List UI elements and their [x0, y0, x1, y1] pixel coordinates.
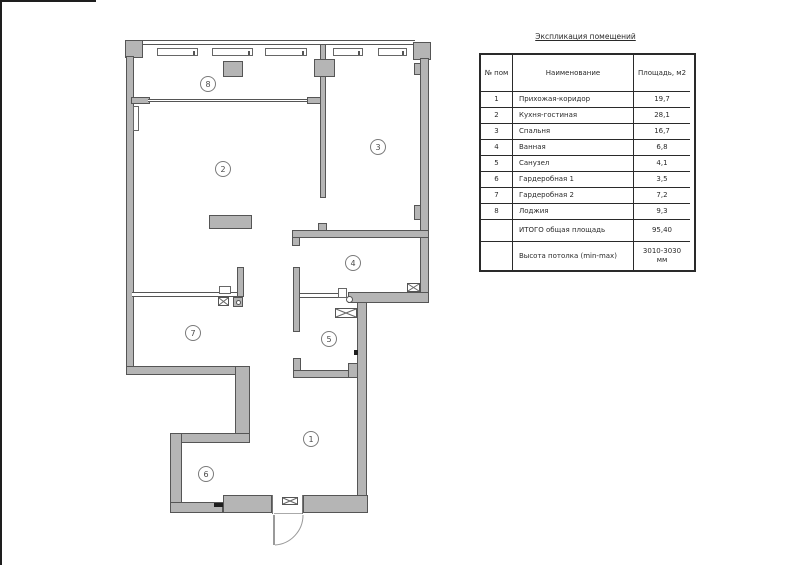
cell-num: 1 — [481, 92, 513, 108]
window — [212, 48, 253, 56]
top-exterior-wall — [143, 40, 415, 45]
room-marker-1: 1 — [303, 431, 319, 447]
cell-num: 5 — [481, 156, 513, 172]
room-number: 5 — [326, 335, 331, 344]
room-marker-4: 4 — [345, 255, 361, 271]
cell-name: Спальня — [513, 124, 634, 140]
door-jamb-icon — [219, 286, 231, 294]
room-number: 6 — [203, 470, 208, 479]
table-title: Экспликация помещений — [479, 32, 692, 41]
cell-num: 4 — [481, 140, 513, 156]
cell-num: 7 — [481, 188, 513, 204]
cell-area: 19,7 — [634, 92, 690, 108]
window — [333, 48, 363, 56]
wall-room4-top — [292, 230, 429, 238]
kitchen-island — [209, 215, 252, 229]
loggia-glazing-line — [148, 99, 310, 102]
total-value: 95,40 — [634, 220, 690, 242]
cell-num: 8 — [481, 204, 513, 220]
wall-step-vertical — [235, 366, 250, 443]
vent-shaft-icon — [218, 297, 229, 306]
pilaster — [414, 63, 421, 75]
room-number: 7 — [190, 329, 195, 338]
cell-name: Гардеробная 2 — [513, 188, 634, 204]
col-header-num: № пом — [481, 55, 513, 92]
cell-area: 3,5 — [634, 172, 690, 188]
col-header-area: Площадь, м2 — [634, 55, 690, 92]
vent-shaft-icon — [407, 283, 420, 292]
ceiling-label: Высота потолка (min-max) — [513, 242, 634, 270]
pilaster — [414, 205, 421, 220]
entry-lintel-icon — [282, 497, 298, 505]
bottom-wall-right — [303, 495, 368, 513]
divider-wall-rooms-2-3 — [320, 76, 326, 198]
cell-area: 7,2 — [634, 188, 690, 204]
cell-name: Лоджия — [513, 204, 634, 220]
door-hinge-icon — [233, 297, 243, 307]
cell-num: 6 — [481, 172, 513, 188]
wall-room7-stub — [237, 267, 244, 297]
column-block — [314, 59, 335, 77]
cell-name: Гардеробная 1 — [513, 172, 634, 188]
cell-name: Санузел — [513, 156, 634, 172]
ceiling-value: 3010-3030 мм — [634, 242, 690, 270]
wall-room6-top — [170, 433, 250, 443]
radiator-niche — [133, 106, 139, 131]
bottom-wall-mid — [223, 495, 272, 513]
col-header-name: Наименование — [513, 55, 634, 92]
scan-edge-top — [0, 0, 96, 2]
window — [157, 48, 198, 56]
explication-table: № пом Наименование Площадь, м2 1 Прихожа… — [479, 53, 696, 272]
entry-jamb — [302, 495, 303, 514]
wall-bump — [318, 223, 327, 231]
room-number: 3 — [375, 143, 380, 152]
right-exterior-wall — [420, 58, 429, 303]
room-marker-6: 6 — [198, 466, 214, 482]
room-marker-8: 8 — [200, 76, 216, 92]
cell-area: 28,1 — [634, 108, 690, 124]
room-number: 4 — [350, 259, 355, 268]
room-marker-2: 2 — [215, 161, 231, 177]
wall-room5-top — [300, 293, 343, 298]
window — [265, 48, 307, 56]
entry-door-arc — [275, 514, 303, 545]
empty-cell — [481, 220, 513, 242]
cell-area: 6,8 — [634, 140, 690, 156]
empty-cell — [481, 242, 513, 270]
floorplan-sheet: 1 2 3 4 5 6 7 8 Экспликация помещений № … — [0, 0, 800, 565]
wall-corridor-right — [293, 267, 300, 332]
cell-area: 16,7 — [634, 124, 690, 140]
scan-edge-left — [0, 0, 2, 565]
room-number: 1 — [308, 435, 313, 444]
cell-area: 4,1 — [634, 156, 690, 172]
cell-name: Кухня-гостиная — [513, 108, 634, 124]
wall-stub — [292, 237, 300, 246]
cell-name: Ванная — [513, 140, 634, 156]
room-marker-5: 5 — [321, 331, 337, 347]
cell-num: 3 — [481, 124, 513, 140]
total-label: ИТОГО общая площадь — [513, 220, 634, 242]
window — [378, 48, 407, 56]
room-number: 2 — [220, 165, 225, 174]
threshold-mark — [214, 503, 223, 507]
wall-step-horizontal — [126, 366, 250, 375]
cell-area: 9,3 — [634, 204, 690, 220]
wall-room6-left — [170, 433, 182, 513]
wall-notch — [354, 350, 358, 355]
cell-name: Прихожая-коридор — [513, 92, 634, 108]
vent-shaft-icon — [335, 308, 357, 318]
cell-num: 2 — [481, 108, 513, 124]
entry-jamb — [272, 495, 273, 514]
wall-right-interior — [357, 302, 367, 513]
room-marker-3: 3 — [370, 139, 386, 155]
room-marker-7: 7 — [185, 325, 201, 341]
room-number: 8 — [205, 80, 210, 89]
column-small — [223, 61, 243, 77]
door-pivot-icon — [346, 296, 353, 303]
